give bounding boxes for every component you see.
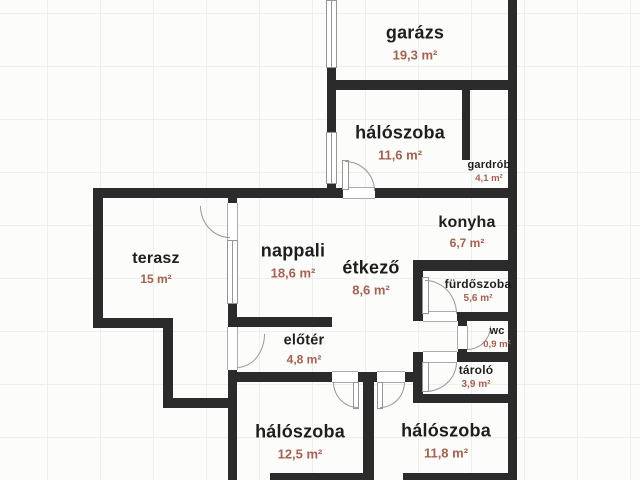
room-label-nappali: nappali 18,6 m² (261, 242, 325, 281)
room-name: előtér (284, 334, 325, 349)
room-label-eloter: előtér 4,8 m² (284, 334, 325, 367)
door-swing-arc (345, 161, 375, 191)
room-area: 15 m² (132, 273, 179, 286)
door-swing-arc (237, 334, 265, 368)
wall (93, 318, 173, 328)
room-name: hálószoba (355, 124, 445, 143)
wall (93, 188, 343, 198)
wall (93, 188, 103, 328)
window (326, 132, 337, 184)
room-label-konyha: konyha 6,7 m² (438, 215, 495, 249)
room-area: 4,8 m² (284, 354, 325, 367)
floor-plan: garázs 19,3 m² hálószoba 11,6 m² gardrób… (0, 0, 640, 480)
room-label-gardrob: gardrób 4,1 m² (468, 160, 511, 184)
wall (413, 394, 517, 403)
room-name: wc (483, 326, 510, 338)
wall (163, 318, 173, 408)
room-label-garazs: garázs 19,3 m² (386, 24, 444, 63)
room-area: 12,5 m² (255, 448, 345, 462)
wall (228, 188, 237, 203)
room-name: nappali (261, 242, 325, 261)
wall (327, 80, 517, 90)
room-area: 3,9 m² (459, 380, 494, 391)
room-name: fürdőszoba (445, 278, 512, 291)
room-area: 4,1 m² (468, 174, 511, 184)
wall (228, 370, 237, 480)
window (326, 0, 337, 68)
room-area: 11,6 m² (355, 149, 445, 163)
wall (457, 352, 517, 362)
room-name: terasz (132, 251, 179, 268)
wall (228, 302, 237, 327)
wall (462, 90, 470, 160)
room-area: 6,7 m² (438, 237, 495, 250)
room-label-haloszoba-1: hálószoba 11,6 m² (355, 124, 445, 163)
wall (413, 260, 517, 271)
room-label-terasz: terasz 15 m² (132, 251, 179, 285)
room-name: hálószoba (255, 423, 345, 442)
wall (457, 312, 517, 321)
wall (237, 317, 332, 327)
room-area: 11,8 m² (401, 447, 491, 461)
wall (403, 473, 508, 480)
wall (363, 378, 374, 480)
window (227, 240, 238, 304)
door-swing-arc (380, 382, 405, 408)
door-swing-arc (425, 362, 457, 392)
wall (327, 67, 336, 132)
room-area: 0,9 m² (483, 340, 510, 350)
room-label-haloszoba-3: hálószoba 11,8 m² (401, 422, 491, 461)
room-label-wc: wc 0,9 m² (483, 326, 510, 350)
room-label-haloszoba-2: hálószoba 12,5 m² (255, 423, 345, 462)
room-label-furdoszoba: fürdőszoba 5,6 m² (445, 278, 512, 304)
room-label-etkezo: étkező 8,6 m² (342, 259, 399, 298)
room-area: 8,6 m² (342, 284, 399, 298)
room-area: 18,6 m² (261, 267, 325, 281)
wall (375, 188, 517, 198)
room-name: hálószoba (401, 422, 491, 441)
room-name: konyha (438, 215, 495, 232)
door-swing-arc (333, 382, 358, 408)
wall (270, 473, 363, 480)
room-name: gardrób (468, 160, 511, 172)
door-swing-arc (200, 206, 230, 238)
room-area: 5,6 m² (445, 294, 512, 305)
wall (508, 0, 517, 480)
room-label-tarolo: tároló 3,9 m² (459, 364, 494, 390)
wall (163, 398, 237, 408)
room-name: garázs (386, 24, 444, 43)
room-name: tároló (459, 364, 494, 377)
wall (228, 372, 332, 382)
room-area: 19,3 m² (386, 49, 444, 63)
room-name: étkező (342, 259, 399, 278)
